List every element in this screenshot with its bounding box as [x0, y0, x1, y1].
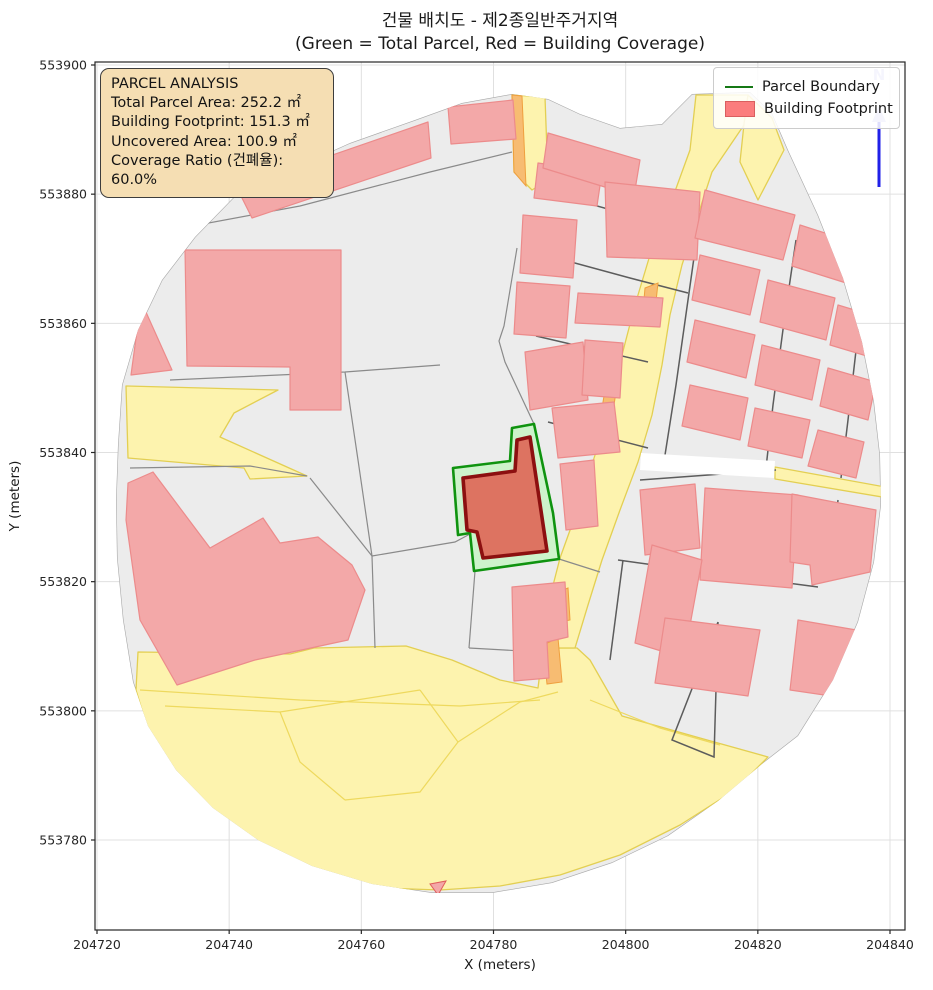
y-tick-label: 553840	[39, 445, 87, 460]
building-footprint	[448, 100, 516, 144]
building-footprint	[514, 282, 570, 338]
building-footprint	[525, 342, 588, 410]
x-tick-label: 204840	[866, 937, 914, 952]
y-tick-label: 553880	[39, 187, 87, 202]
y-tick-label: 553780	[39, 833, 87, 848]
x-axis-label: X (meters)	[95, 957, 905, 973]
building-footprint	[520, 215, 577, 278]
y-tick-label: 553860	[39, 316, 87, 331]
building-footprint	[560, 460, 598, 530]
parcel-analysis-title: PARCEL ANALYSIS	[111, 75, 323, 94]
building-footprint	[575, 293, 663, 327]
coverage-ratio: Coverage Ratio (건폐율): 60.0%	[111, 152, 323, 190]
building-footprint-swatch-icon	[725, 101, 755, 117]
x-tick-label: 204760	[337, 937, 385, 952]
building-footprint	[640, 484, 700, 555]
building-footprint	[700, 488, 798, 588]
building-footprint	[655, 618, 760, 696]
x-tick-label: 204800	[602, 937, 650, 952]
parcel-boundary-swatch-icon	[725, 86, 753, 88]
y-tick-label: 553820	[39, 574, 87, 589]
figure: 건물 배치도 - 제2종일반주거지역 (Green = Total Parcel…	[0, 0, 933, 990]
building-footprint	[552, 402, 620, 458]
building-footprint	[582, 340, 623, 398]
building-footprint	[790, 620, 868, 700]
x-tick-label: 204820	[734, 937, 782, 952]
building-footprint	[605, 182, 700, 260]
legend-label: Building Footprint	[764, 101, 893, 117]
legend-label: Parcel Boundary	[762, 79, 880, 95]
y-tick-label: 553900	[39, 58, 87, 73]
legend: Parcel Boundary Building Footprint	[713, 67, 900, 129]
y-tick-label: 553800	[39, 703, 87, 718]
parcel-analysis-box: PARCEL ANALYSIS Total Parcel Area: 252.2…	[100, 68, 334, 198]
legend-row-parcel-boundary: Parcel Boundary	[725, 76, 888, 98]
x-tick-label: 204740	[205, 937, 253, 952]
total-parcel-area: Total Parcel Area: 252.2 ㎡	[111, 94, 323, 113]
building-footprint-area: Building Footprint: 151.3 ㎡	[111, 113, 323, 132]
map-layers	[116, 92, 888, 896]
legend-row-building-footprint: Building Footprint	[725, 98, 888, 120]
x-tick-label: 204780	[470, 937, 518, 952]
x-tick-label: 204720	[73, 937, 121, 952]
uncovered-area: Uncovered Area: 100.9 ㎡	[111, 133, 323, 152]
y-axis-label: Y (meters)	[7, 441, 23, 551]
